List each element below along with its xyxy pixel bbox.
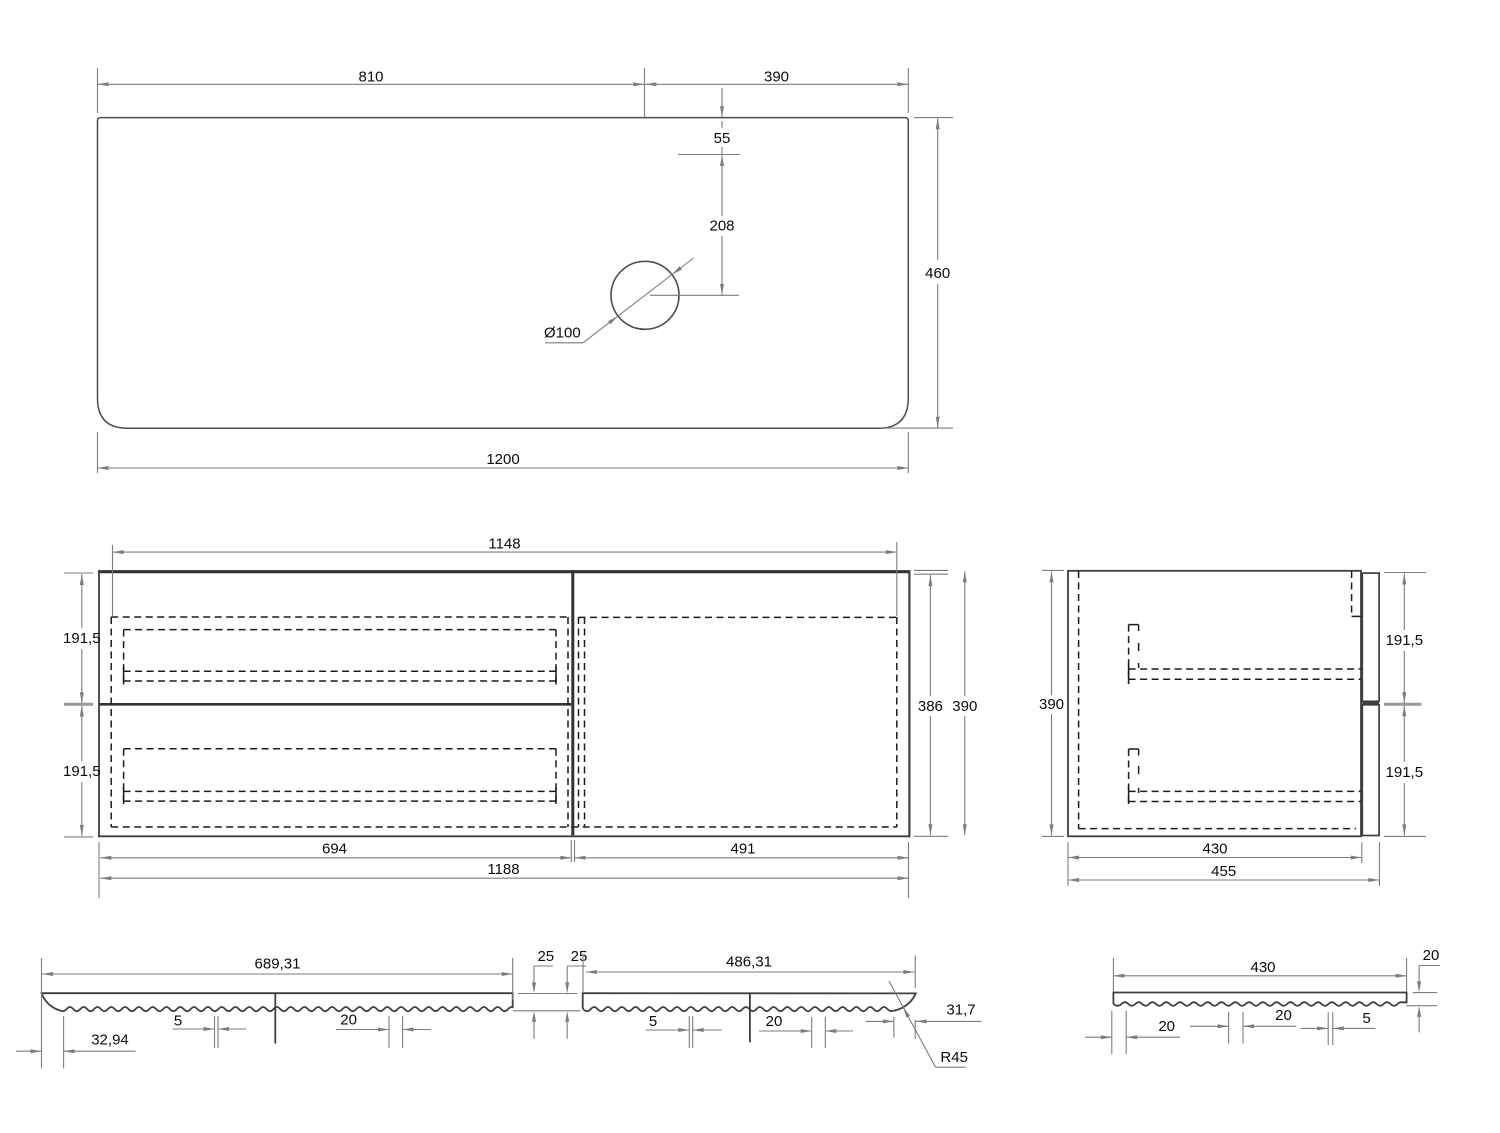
svg-text:1148: 1148	[488, 536, 520, 553]
svg-text:430: 430	[1250, 959, 1275, 976]
svg-text:20: 20	[340, 1012, 357, 1029]
svg-text:1188: 1188	[487, 861, 519, 878]
svg-text:R45: R45	[940, 1049, 968, 1066]
svg-text:1200: 1200	[486, 451, 519, 468]
svg-text:25: 25	[537, 948, 554, 965]
svg-text:694: 694	[322, 841, 347, 858]
svg-text:810: 810	[358, 69, 383, 86]
svg-text:689,31: 689,31	[255, 956, 301, 973]
svg-text:31,7: 31,7	[946, 1001, 975, 1018]
svg-text:486,31: 486,31	[726, 954, 772, 971]
svg-text:208: 208	[709, 218, 734, 235]
svg-text:430: 430	[1202, 841, 1227, 858]
svg-text:5: 5	[649, 1013, 657, 1030]
svg-text:191,5: 191,5	[63, 630, 101, 647]
svg-text:491: 491	[730, 841, 755, 858]
svg-text:25: 25	[571, 948, 588, 965]
svg-text:455: 455	[1211, 863, 1236, 880]
svg-text:20: 20	[766, 1013, 783, 1030]
svg-text:191,5: 191,5	[1386, 764, 1424, 781]
svg-text:390: 390	[952, 698, 977, 715]
svg-text:32,94: 32,94	[91, 1032, 129, 1049]
svg-text:Ø100: Ø100	[544, 325, 581, 342]
svg-text:390: 390	[764, 69, 789, 86]
svg-text:386: 386	[918, 698, 943, 715]
svg-text:191,5: 191,5	[63, 763, 101, 780]
svg-text:20: 20	[1275, 1007, 1292, 1024]
svg-text:20: 20	[1423, 947, 1440, 964]
svg-text:390: 390	[1039, 696, 1064, 713]
svg-text:460: 460	[925, 265, 950, 282]
svg-text:5: 5	[1362, 1010, 1370, 1027]
svg-text:20: 20	[1158, 1018, 1175, 1035]
svg-text:55: 55	[714, 130, 731, 147]
svg-text:191,5: 191,5	[1386, 632, 1424, 649]
svg-text:5: 5	[174, 1012, 182, 1029]
